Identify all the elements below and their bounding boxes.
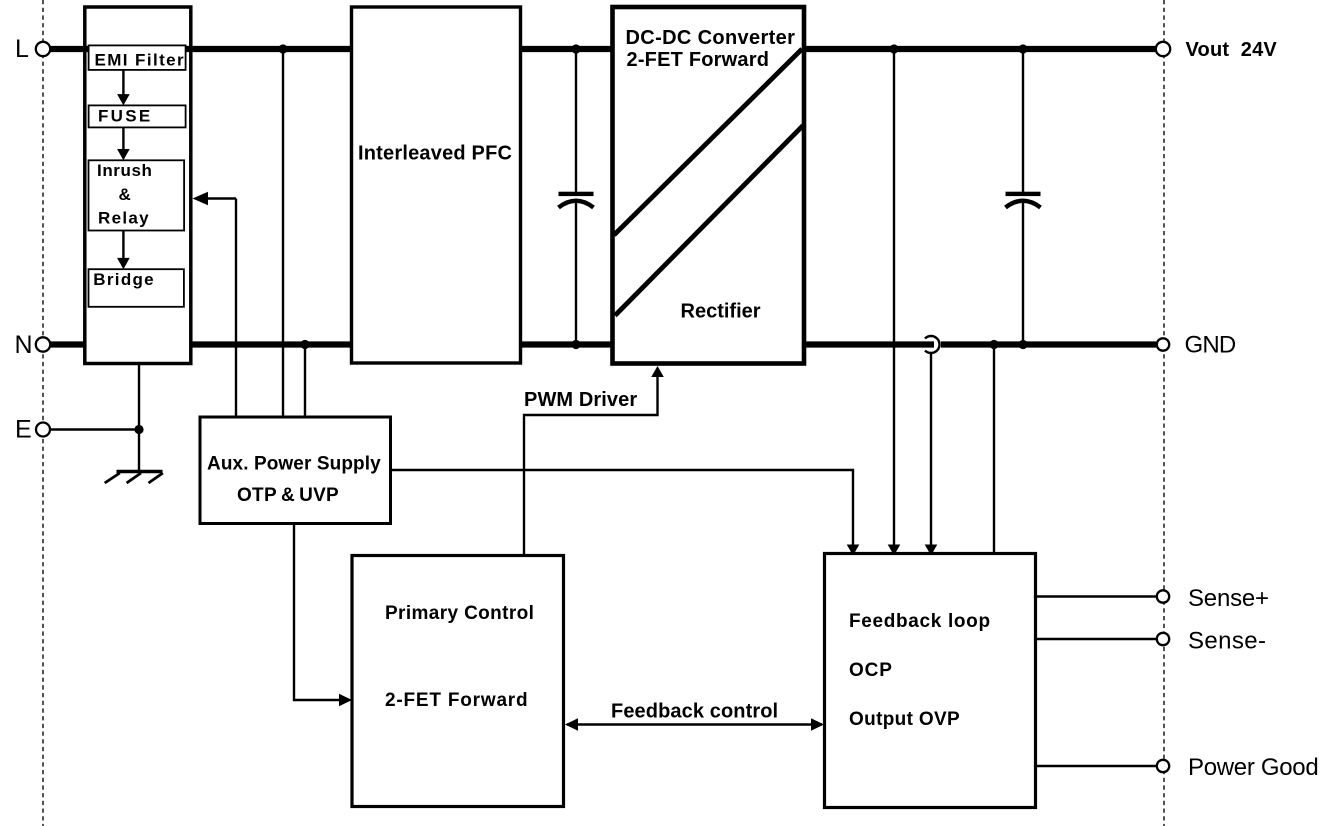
svg-text:Bridge: Bridge xyxy=(93,270,155,289)
svg-text:PWM Driver: PWM Driver xyxy=(524,389,637,411)
svg-text:Sense-: Sense- xyxy=(1188,628,1266,655)
svg-text:FUSE: FUSE xyxy=(98,107,153,126)
svg-text:L: L xyxy=(15,35,29,63)
svg-text:Aux. Power Supply: Aux. Power Supply xyxy=(207,454,381,475)
svg-text:Inrush: Inrush xyxy=(97,161,153,180)
svg-text:E: E xyxy=(15,416,32,444)
svg-text:EMI Filter: EMI Filter xyxy=(95,50,186,69)
svg-text:Feedback loop: Feedback loop xyxy=(849,611,991,632)
svg-text:&: & xyxy=(119,185,131,204)
svg-text:OCP: OCP xyxy=(849,660,893,681)
svg-text:Feedback control: Feedback control xyxy=(611,701,778,723)
svg-text:Output OVP: Output OVP xyxy=(849,709,960,730)
svg-text:2-FET Forward: 2-FET Forward xyxy=(385,690,528,711)
svg-text:Relay: Relay xyxy=(98,209,150,228)
svg-text:N: N xyxy=(15,331,33,359)
svg-text:Rectifier: Rectifier xyxy=(681,301,761,323)
svg-text:DC-DC Converter: DC-DC Converter xyxy=(626,27,796,49)
svg-text:GND: GND xyxy=(1185,332,1236,359)
svg-text:2-FET Forward: 2-FET Forward xyxy=(627,49,770,71)
svg-text:Power Good: Power Good xyxy=(1188,754,1318,781)
svg-text:Vout 24V: Vout 24V xyxy=(1186,39,1278,61)
svg-text:OTP & UVP: OTP & UVP xyxy=(237,485,339,506)
svg-text:Interleaved PFC: Interleaved PFC xyxy=(358,143,512,165)
svg-text:Sense+: Sense+ xyxy=(1188,585,1269,612)
svg-text:Primary Control: Primary Control xyxy=(385,603,534,624)
